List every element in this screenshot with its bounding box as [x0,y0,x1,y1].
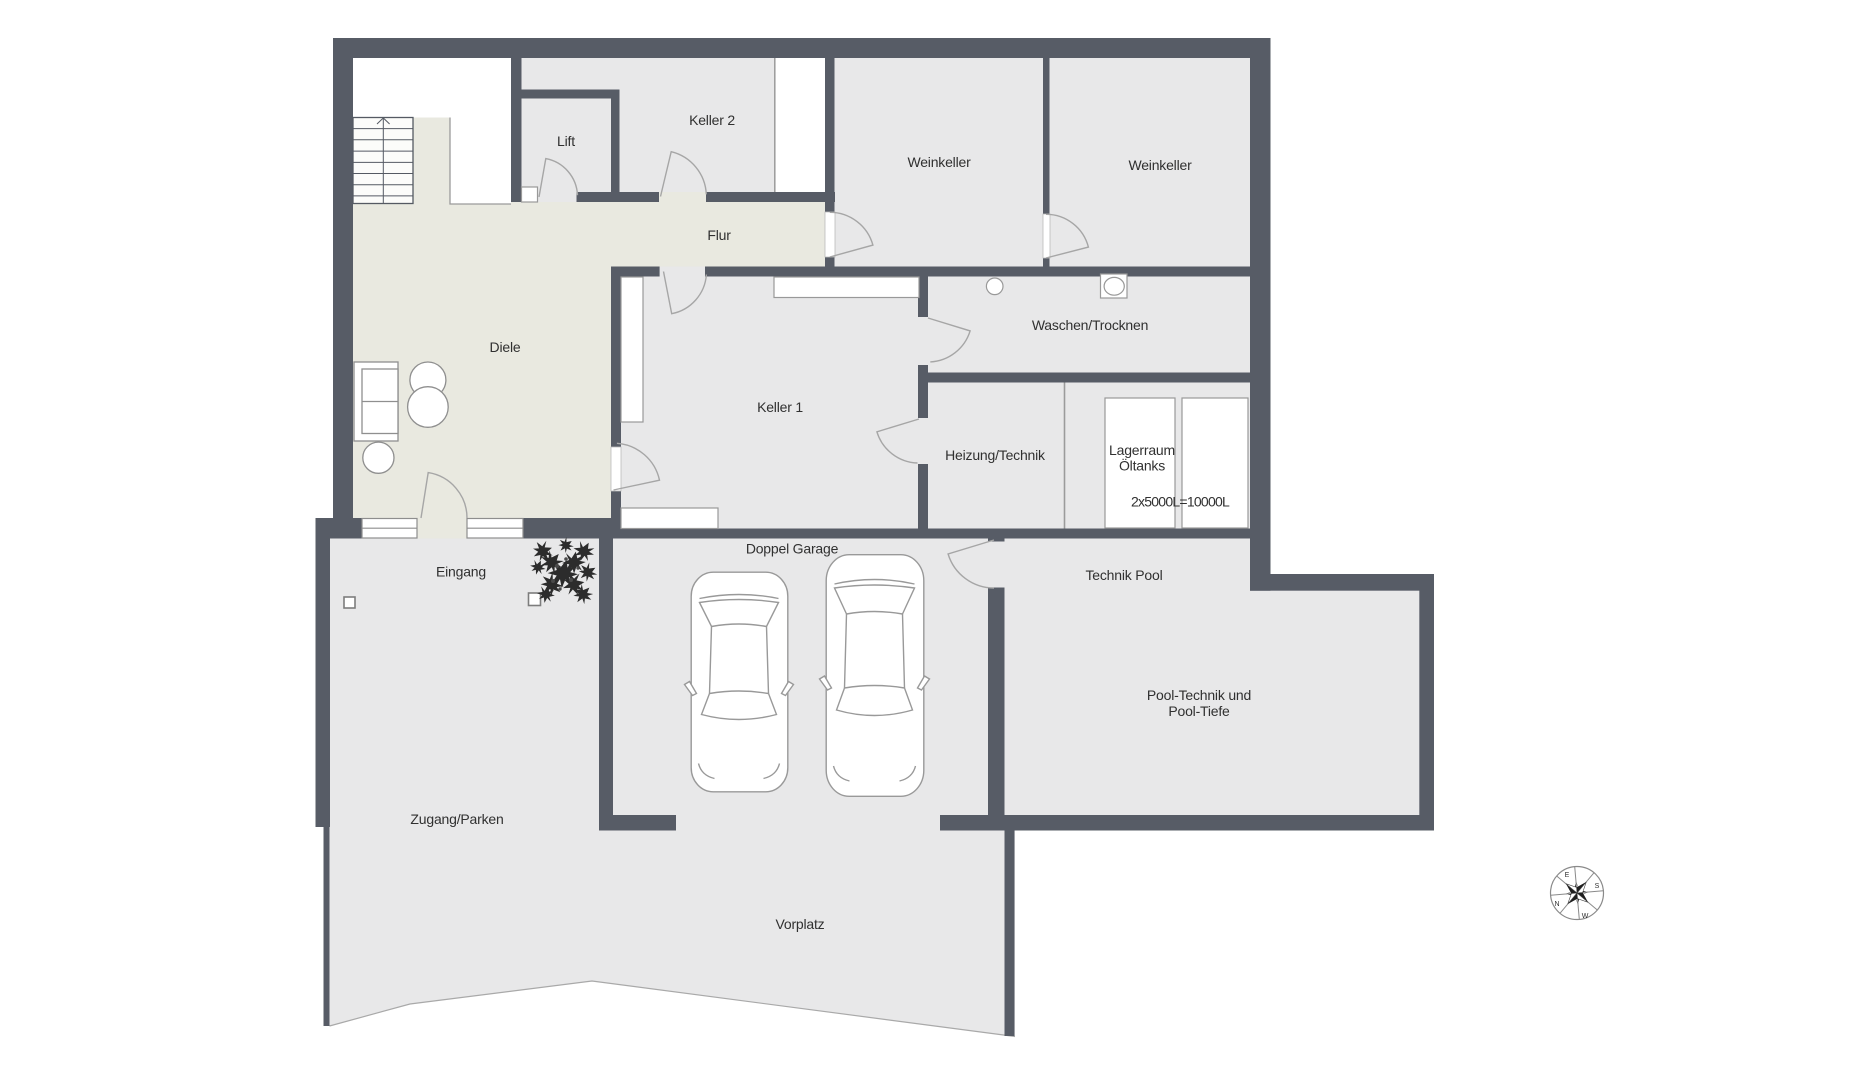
svg-text:Öltanks: Öltanks [1119,457,1165,474]
svg-text:S: S [1595,883,1600,890]
svg-text:Lift: Lift [557,133,575,149]
svg-text:Doppel Garage: Doppel Garage [746,541,839,557]
svg-text:Zugang/Parken: Zugang/Parken [410,811,503,827]
svg-text:Pool-Technik und: Pool-Technik und [1147,687,1251,703]
svg-text:Heizung/Technik: Heizung/Technik [945,447,1046,463]
svg-text:Keller 2: Keller 2 [689,112,735,128]
svg-text:2x5000L=10000L: 2x5000L=10000L [1131,494,1230,510]
svg-text:Eingang: Eingang [436,564,486,580]
svg-text:Vorplatz: Vorplatz [776,916,825,932]
svg-text:N: N [1554,901,1559,908]
svg-text:Keller 1: Keller 1 [757,399,803,415]
svg-text:W: W [1582,913,1589,920]
svg-text:Weinkeller: Weinkeller [1128,157,1192,173]
svg-text:Flur: Flur [707,227,731,243]
svg-text:Waschen/Trocknen: Waschen/Trocknen [1032,317,1148,333]
svg-text:Weinkeller: Weinkeller [907,154,971,170]
svg-text:Pool-Tiefe: Pool-Tiefe [1168,703,1230,719]
svg-text:Technik Pool: Technik Pool [1086,567,1163,583]
svg-text:Diele: Diele [490,339,521,355]
svg-text:Lagerraum: Lagerraum [1109,442,1175,458]
svg-text:E: E [1565,872,1570,879]
